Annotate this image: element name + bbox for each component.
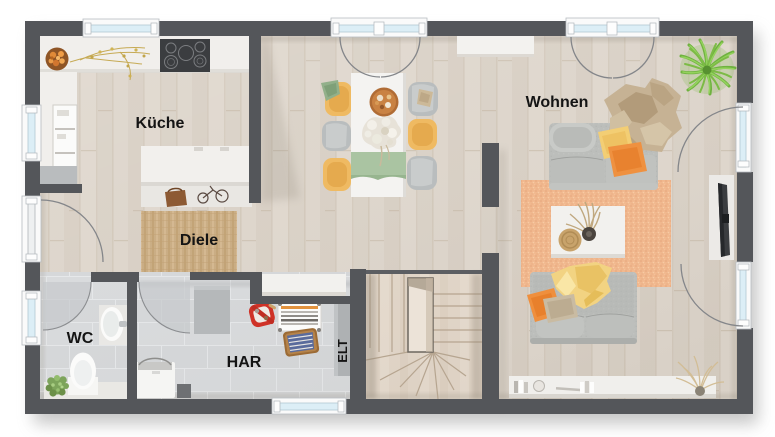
svg-text:HAR: HAR — [227, 354, 262, 371]
svg-text:Küche: Küche — [136, 115, 185, 132]
svg-text:Wohnen: Wohnen — [526, 94, 589, 111]
svg-text:WC: WC — [67, 330, 94, 347]
svg-text:Diele: Diele — [180, 232, 218, 249]
svg-text:ELT: ELT — [335, 339, 350, 363]
